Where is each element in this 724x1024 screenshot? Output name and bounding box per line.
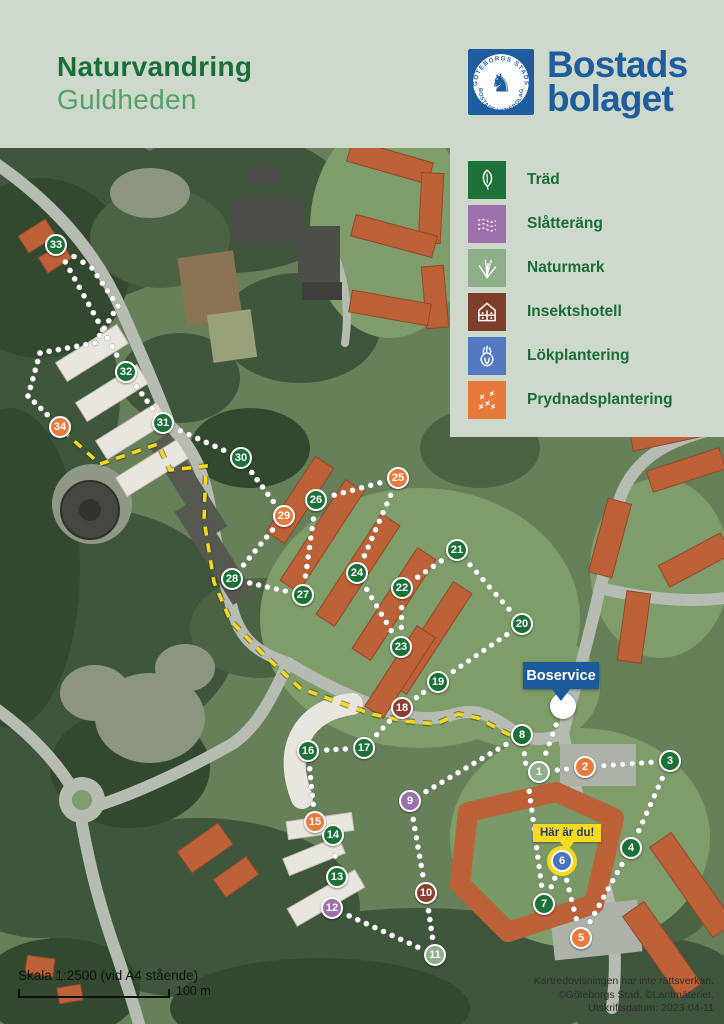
- map-marker-9: 9: [399, 790, 421, 812]
- map-marker-2: 2: [574, 756, 596, 778]
- legend-item-5: Prydnadsplantering: [468, 381, 710, 419]
- map-marker-26: 26: [305, 489, 327, 511]
- map-marker-19: 19: [427, 671, 449, 693]
- map-marker-33: 33: [45, 234, 67, 256]
- map-marker-30: 30: [230, 447, 252, 469]
- map-marker-31: 31: [152, 412, 174, 434]
- map-marker-18: 18: [391, 697, 413, 719]
- attribution-line-1: Kartredovisningen har inte rättsverkan.: [534, 975, 714, 989]
- legend-item-label: Slåtteräng: [527, 215, 603, 233]
- legend-item-4: Lökplantering: [468, 337, 710, 375]
- map-marker-11: 11: [424, 944, 446, 966]
- page-title: Naturvandring Guldheden: [57, 50, 252, 116]
- title-line-2: Guldheden: [57, 83, 252, 116]
- legend-item-0: Träd: [468, 161, 710, 199]
- map-marker-5: 5: [570, 927, 592, 949]
- map-marker-3: 3: [659, 750, 681, 772]
- map-marker-16: 16: [297, 740, 319, 762]
- scale-bar: [18, 989, 170, 998]
- legend-item-label: Lökplantering: [527, 347, 629, 365]
- you-are-here-label: Här är du!: [540, 827, 594, 839]
- onion-icon: [468, 337, 506, 375]
- bostadsbolaget-logo: GÖTEBORGS STADS BOSTADSAKTIEBOLAG ♞ Bost…: [468, 48, 687, 116]
- map-marker-28: 28: [221, 568, 243, 590]
- legend-item-1: Slåtteräng: [468, 205, 710, 243]
- map-marker-7: 7: [533, 893, 555, 915]
- map-marker-27: 27: [292, 584, 314, 606]
- city-crest-badge-icon: GÖTEBORGS STADS BOSTADSAKTIEBOLAG ♞: [468, 49, 534, 115]
- legend-item-label: Prydnadsplantering: [527, 391, 673, 409]
- brand-name: Bostads bolaget: [547, 48, 687, 116]
- map-marker-34: 34: [49, 416, 71, 438]
- map-marker-15: 15: [304, 811, 326, 833]
- legend-item-3: Insektshotell: [468, 293, 710, 331]
- poster-page: Naturvandring Guldheden GÖTEBORGS STADS …: [0, 0, 724, 1024]
- map-marker-10: 10: [415, 882, 437, 904]
- map-marker-6: 6: [551, 850, 573, 872]
- aerial-map: 1234567891011121314151617181920212223242…: [0, 148, 724, 1024]
- badge-lion-glyph: ♞: [490, 70, 512, 97]
- map-marker-29: 29: [273, 505, 295, 527]
- legend-item-label: Insektshotell: [527, 303, 622, 321]
- brand-name-line-2: bolaget: [547, 82, 687, 116]
- map-attribution: Kartredovisningen har inte rättsverkan.©…: [534, 975, 714, 1016]
- map-marker-21: 21: [446, 539, 468, 561]
- map-marker-20: 20: [511, 613, 533, 635]
- attribution-line-2: ©Göteborgs Stad. ©Lantmäteriet.: [534, 989, 714, 1003]
- map-marker-32: 32: [115, 361, 137, 383]
- map-marker-22: 22: [391, 577, 413, 599]
- map-marker-25: 25: [387, 467, 409, 489]
- map-marker-23: 23: [390, 636, 412, 658]
- map-marker-24: 24: [346, 562, 368, 584]
- scale-text: Skala 1:2500 (vid A4 stående): [18, 968, 211, 983]
- legend-panel: TrädSlåtterängNaturmarkInsektshotellLökp…: [450, 148, 724, 437]
- map-marker-17: 17: [353, 737, 375, 759]
- attribution-line-3: Utskriftsdatum: 2023-04-11: [534, 1002, 714, 1016]
- grass-icon: [468, 249, 506, 287]
- legend-item-2: Naturmark: [468, 249, 710, 287]
- boservice-label: Boservice: [526, 668, 595, 684]
- flowers-icon: [468, 381, 506, 419]
- brand-name-line-1: Bostads: [547, 48, 687, 82]
- map-marker-8: 8: [511, 724, 533, 746]
- map-marker-13: 13: [326, 866, 348, 888]
- map-marker-4: 4: [620, 837, 642, 859]
- scale-bar-label: 100 m: [176, 985, 211, 998]
- header: Naturvandring Guldheden GÖTEBORGS STADS …: [0, 0, 724, 148]
- insect-hotel-icon: [468, 293, 506, 331]
- legend-item-label: Träd: [527, 171, 560, 189]
- title-line-1: Naturvandring: [57, 50, 252, 83]
- map-marker-1: 1: [528, 761, 550, 783]
- map-marker-14: 14: [322, 824, 344, 846]
- map-marker-12: 12: [321, 897, 343, 919]
- boservice-flag: Boservice: [523, 662, 599, 689]
- meadow-icon: [468, 205, 506, 243]
- leaf-icon: [468, 161, 506, 199]
- scale-indicator: Skala 1:2500 (vid A4 stående) 100 m: [18, 968, 211, 998]
- you-are-here-flag: Här är du!: [533, 824, 601, 842]
- legend-item-label: Naturmark: [527, 259, 605, 277]
